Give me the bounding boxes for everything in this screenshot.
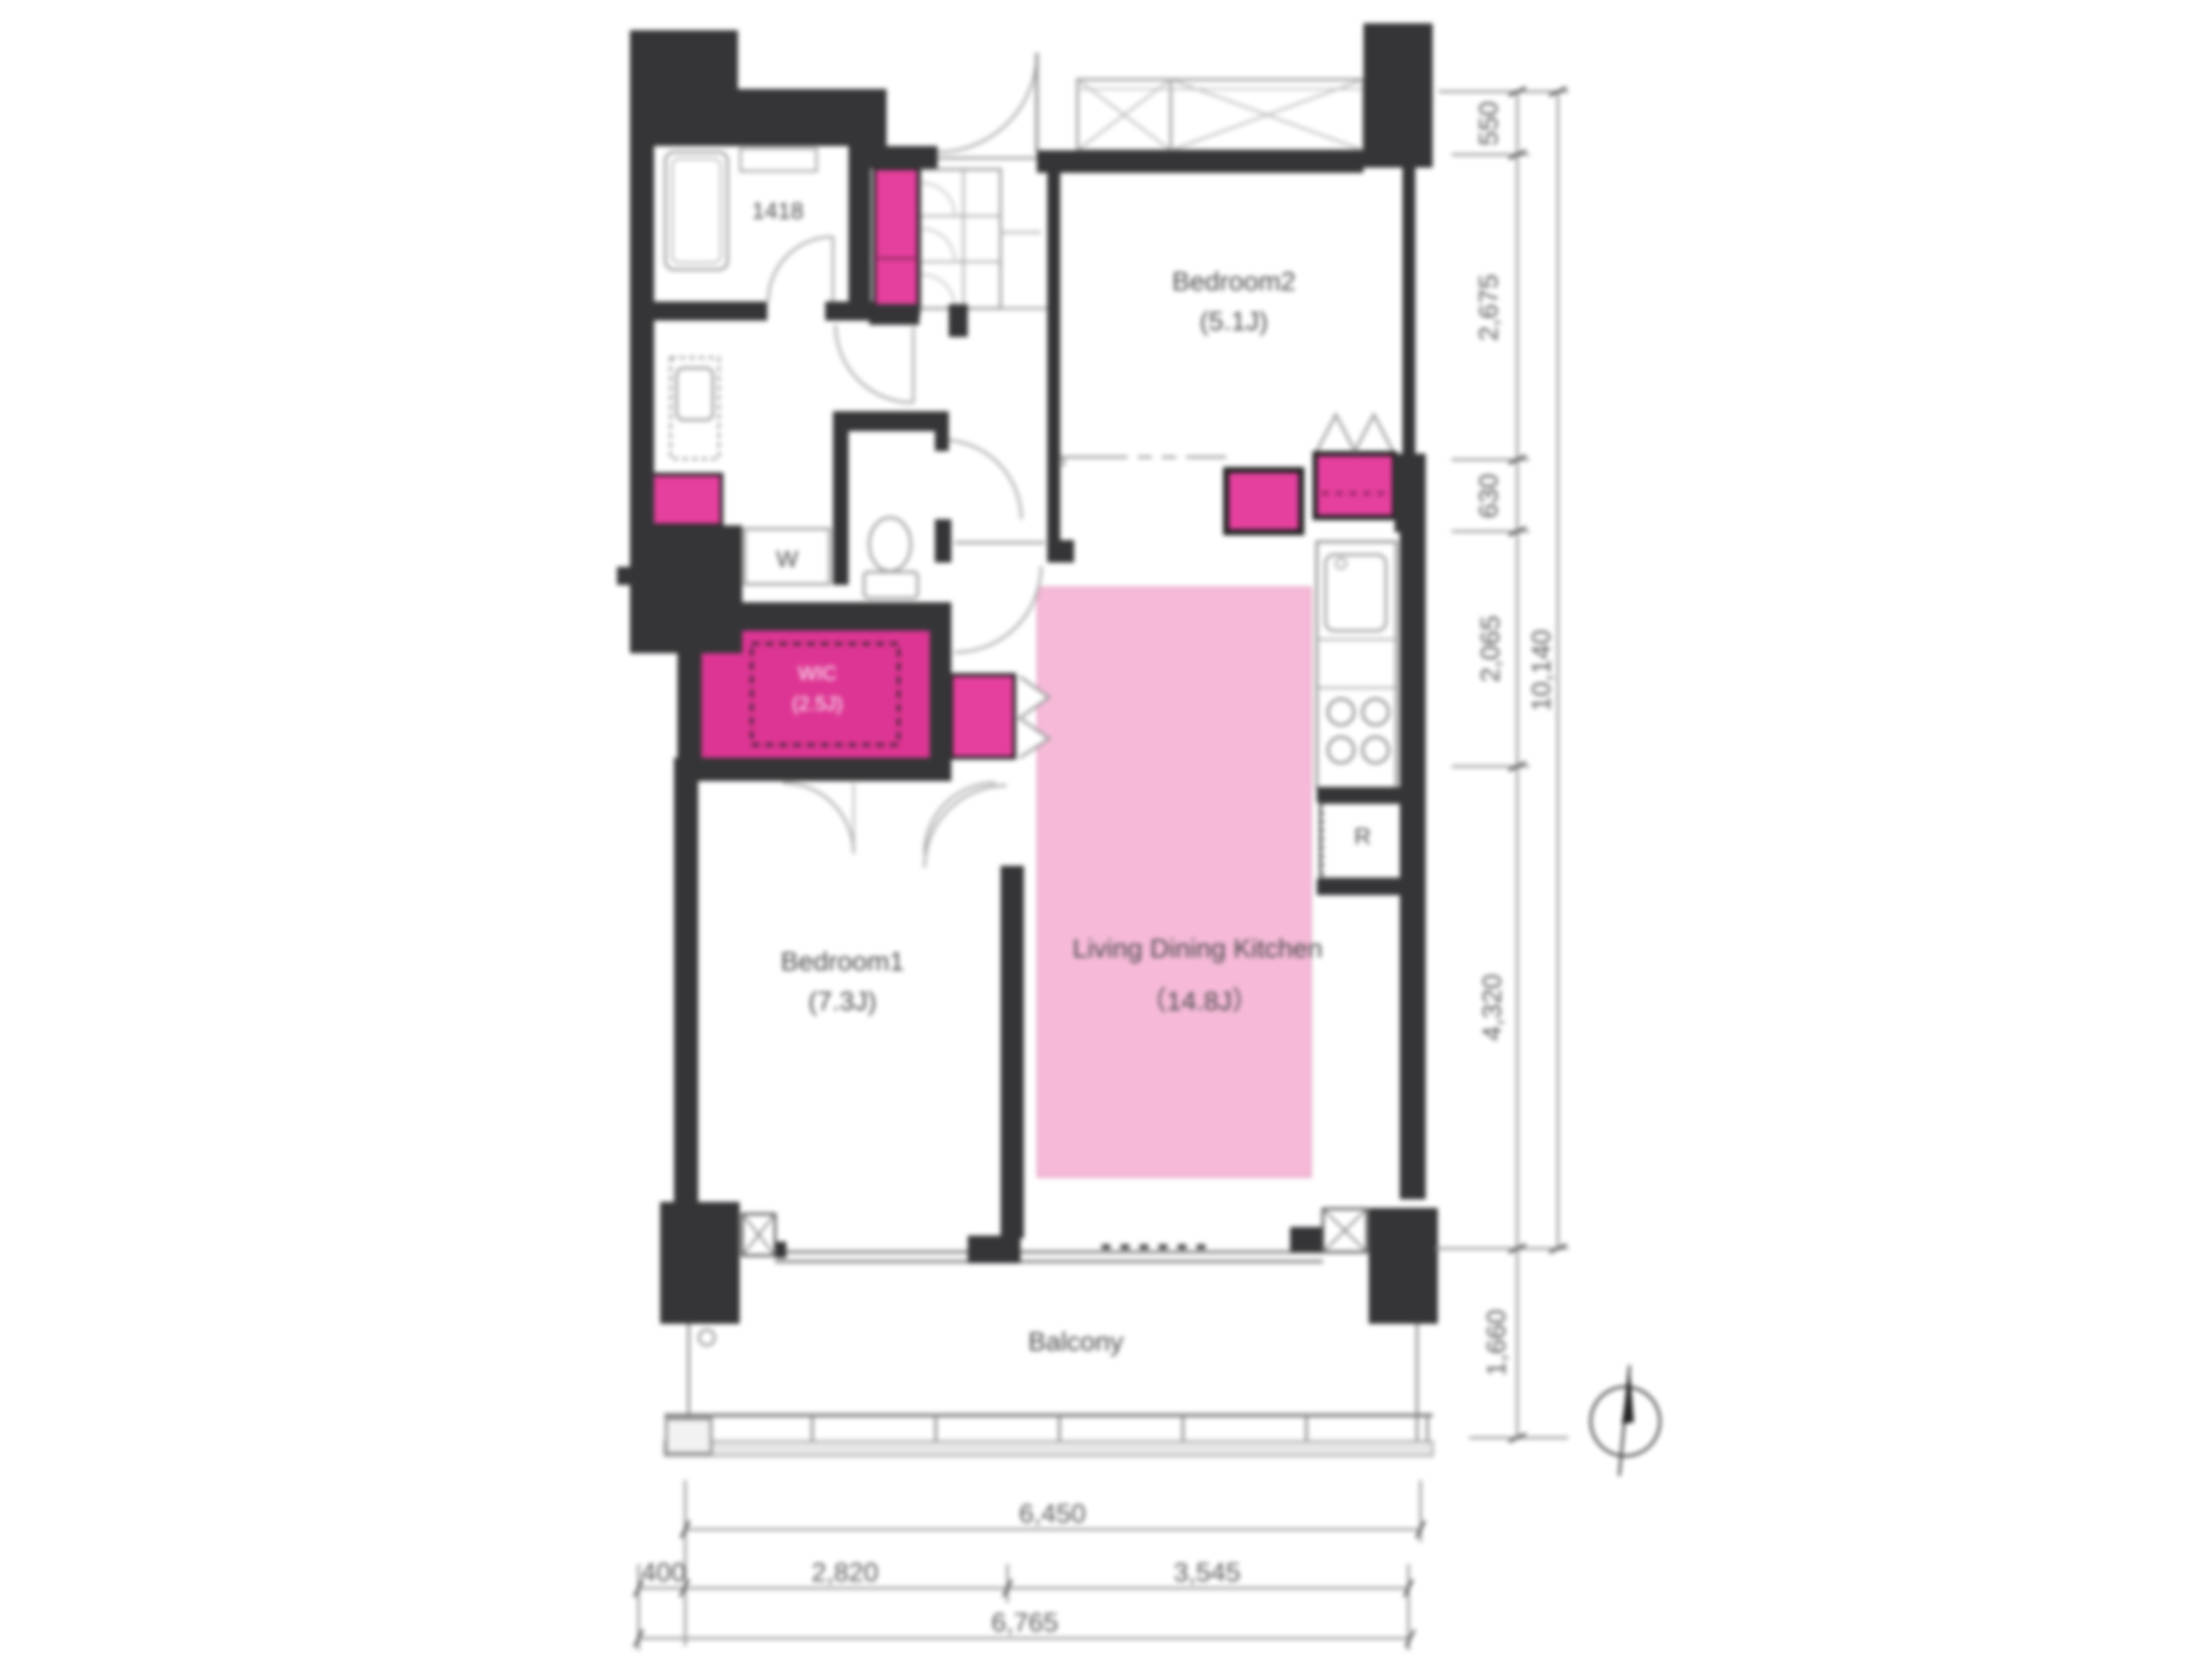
svg-text:W: W [776,546,798,572]
svg-text:(5.1J): (5.1J) [1199,306,1268,336]
svg-text:2,065: 2,065 [1475,615,1505,683]
svg-text:Bedroom1: Bedroom1 [780,946,904,976]
svg-text:4,320: 4,320 [1477,974,1507,1041]
svg-text:(7.3J): (7.3J) [808,986,876,1016]
svg-text:400: 400 [641,1557,686,1587]
svg-text:Balcony: Balcony [1028,1326,1124,1357]
svg-text:3,545: 3,545 [1173,1557,1241,1587]
svg-text:1418: 1418 [752,198,804,224]
svg-text:R: R [1354,823,1371,849]
svg-text:2,820: 2,820 [811,1557,879,1587]
svg-text:6,765: 6,765 [991,1607,1058,1637]
svg-text:Bedroom2: Bedroom2 [1172,266,1295,296]
svg-text:2,675: 2,675 [1473,274,1503,341]
svg-text:550: 550 [1473,101,1503,146]
svg-text:630: 630 [1473,474,1503,518]
svg-text:6,450: 6,450 [1019,1498,1086,1529]
svg-text:WIC: WIC [798,662,837,684]
svg-text:Living Dining Kitchen: Living Dining Kitchen [1072,933,1323,963]
svg-text:（14.8J）: （14.8J） [1140,986,1259,1016]
svg-text:(2.5J): (2.5J) [792,692,843,715]
svg-text:1,660: 1,660 [1481,1309,1511,1376]
svg-text:10,140: 10,140 [1526,630,1556,712]
